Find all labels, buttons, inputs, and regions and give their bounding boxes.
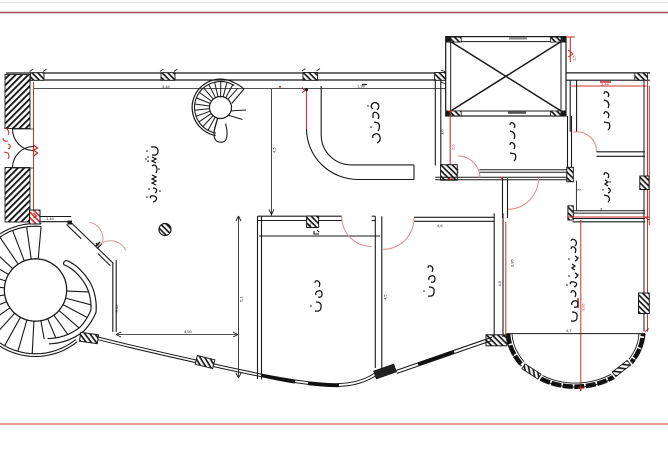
svg-text:3,44: 3,44 — [162, 84, 171, 89]
svg-text:4,6: 4,6 — [437, 223, 443, 228]
svg-text:4,50: 4,50 — [184, 329, 193, 334]
svg-text:4,7: 4,7 — [566, 328, 572, 333]
svg-text:4,5: 4,5 — [497, 280, 502, 286]
svg-text:1,49: 1,49 — [46, 216, 55, 221]
svg-text:1,99: 1,99 — [357, 84, 366, 89]
svg-text:3,05: 3,05 — [114, 304, 119, 313]
svg-text:4,5: 4,5 — [272, 147, 277, 153]
svg-text:5,1: 5,1 — [239, 296, 244, 302]
svg-text:2,6: 2,6 — [451, 144, 456, 150]
svg-text:3,6: 3,6 — [440, 129, 445, 135]
svg-text:3: 3 — [577, 188, 582, 191]
svg-text:3,85: 3,85 — [510, 258, 515, 267]
svg-text:1,5: 1,5 — [572, 55, 577, 61]
svg-text:4,5: 4,5 — [383, 294, 388, 300]
svg-text:3,85: 3,85 — [581, 302, 586, 311]
svg-text:3,44: 3,44 — [601, 82, 610, 87]
